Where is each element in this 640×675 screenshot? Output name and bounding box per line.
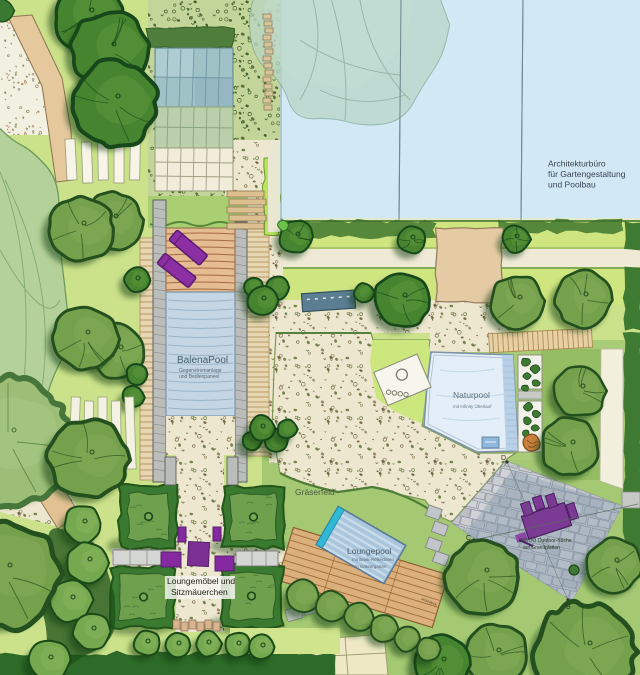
svg-text:und Poolbau: und Poolbau <box>548 180 596 190</box>
svg-text:mit Bank-Reflektoren: mit Bank-Reflektoren <box>352 557 395 562</box>
svg-text:WWOO Outdoor-Küche: WWOO Outdoor-Küche <box>519 538 572 544</box>
svg-text:Naturpool: Naturpool <box>453 390 490 400</box>
svg-text:BalenaPool: BalenaPool <box>177 355 228 366</box>
svg-text:Loungemöbel und: Loungemöbel und <box>167 576 235 586</box>
svg-text:für Gartengestaltung: für Gartengestaltung <box>548 169 626 179</box>
svg-text:und Bedienpaneel: und Bedienpaneel <box>179 374 219 380</box>
svg-text:mit Infinity Überlauf: mit Infinity Überlauf <box>453 403 492 409</box>
svg-text:im Gräsergarten: im Gräsergarten <box>354 564 387 569</box>
svg-text:Gräserfeld: Gräserfeld <box>295 487 335 497</box>
svg-text:C: C <box>466 535 471 542</box>
svg-text:auf Granitplatten: auf Granitplatten <box>523 545 560 551</box>
svg-text:Sitzmäuerchen: Sitzmäuerchen <box>171 587 228 597</box>
svg-text:D: D <box>501 455 506 462</box>
svg-text:B: B <box>566 604 571 611</box>
svg-text:Loungepool: Loungepool <box>347 546 392 556</box>
svg-text:Architekturbüro: Architekturbüro <box>548 159 606 169</box>
